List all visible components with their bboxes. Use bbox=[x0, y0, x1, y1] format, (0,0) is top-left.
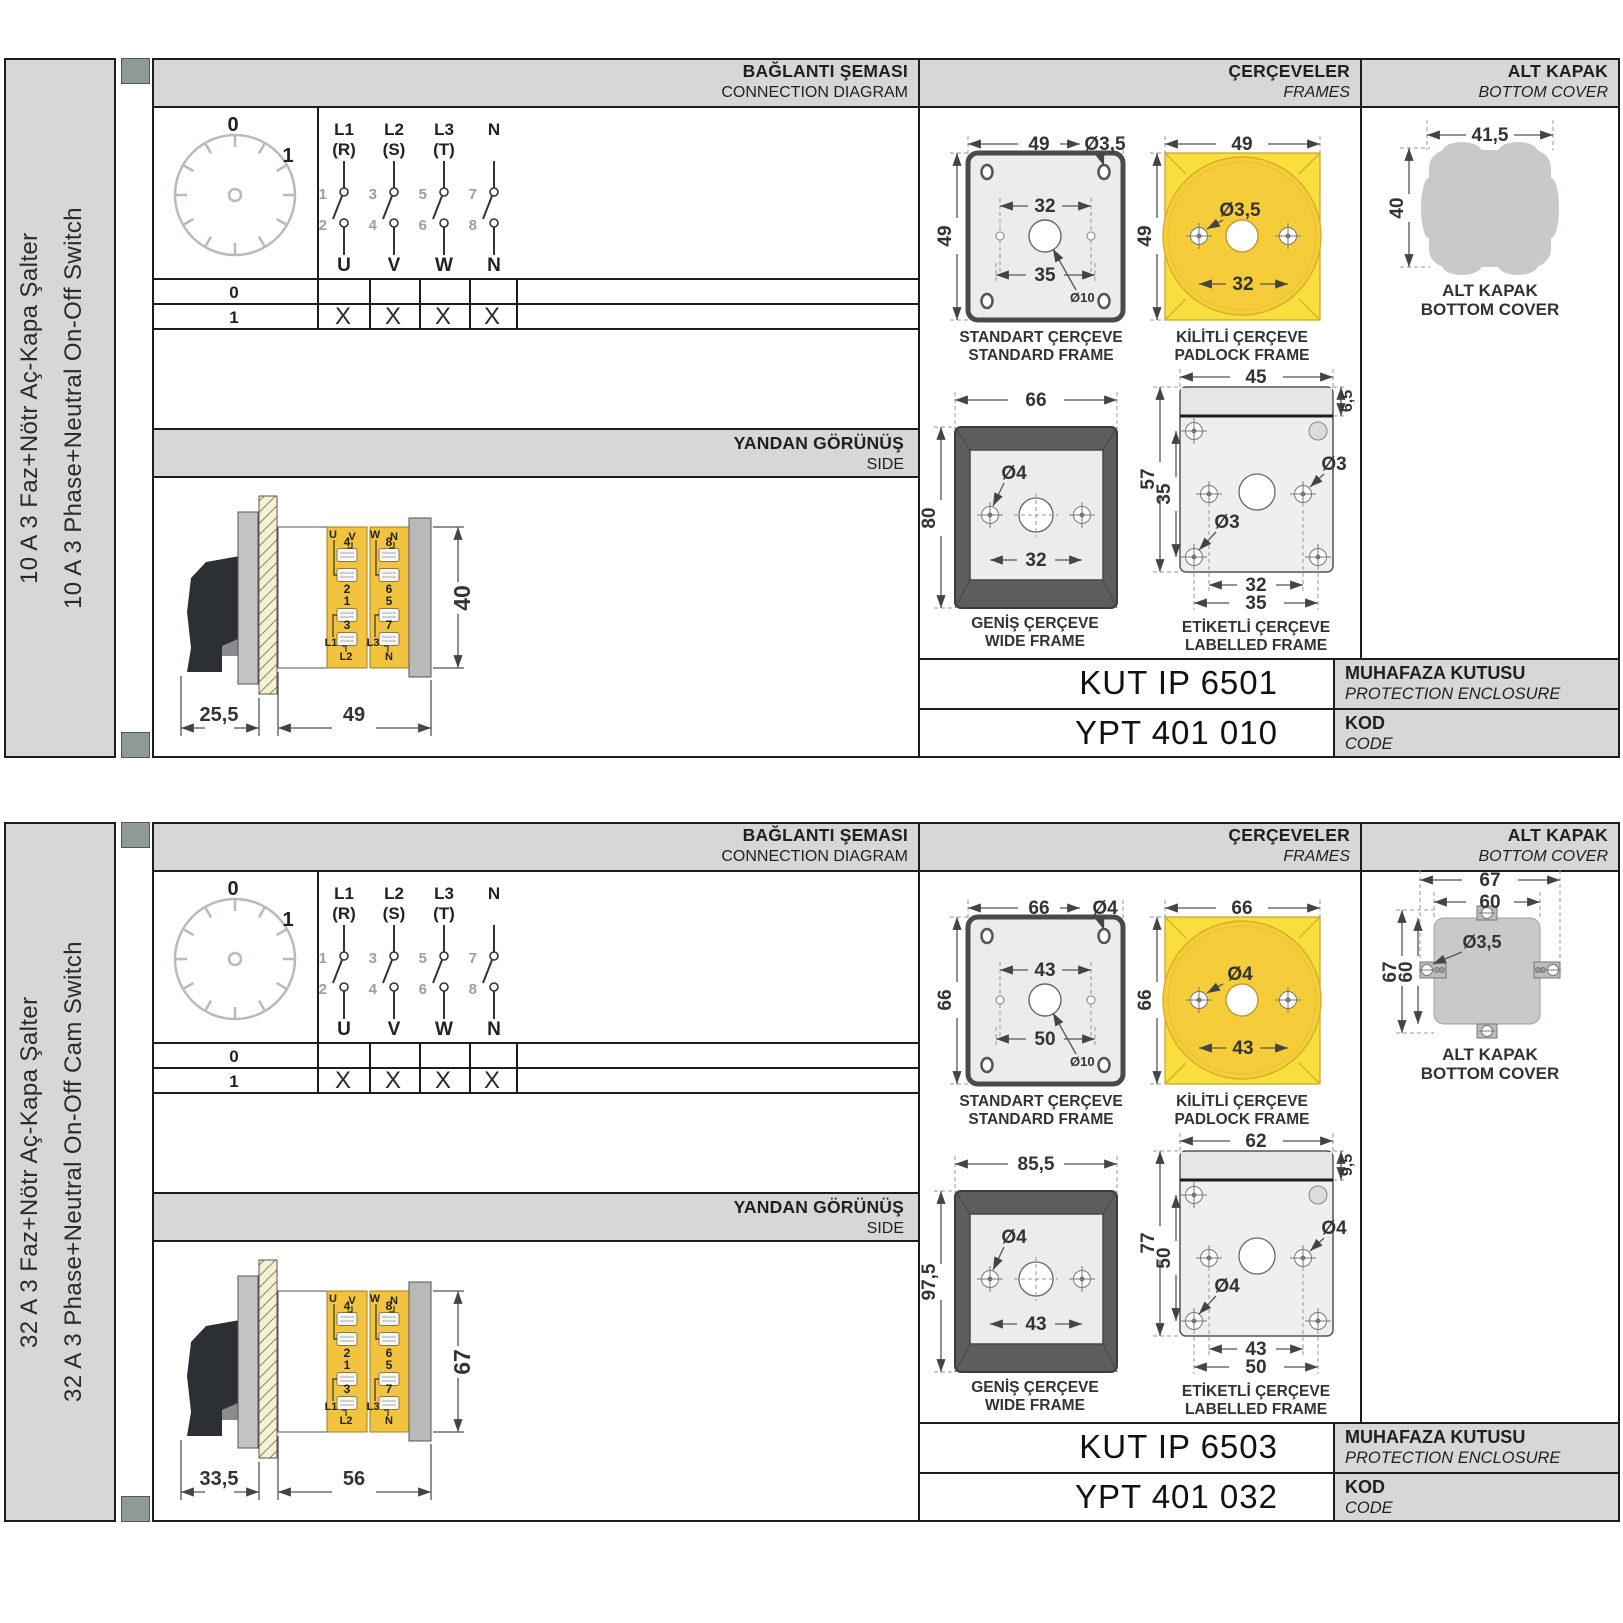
pole-label: (R) bbox=[332, 904, 356, 923]
frame-label-en: WIDE FRAME bbox=[985, 633, 1085, 650]
dim-label: 50 bbox=[1154, 1247, 1175, 1268]
dim-label: 6,5 bbox=[1339, 390, 1356, 412]
dim-label: 49 bbox=[1135, 225, 1156, 246]
terminal-number: 3 bbox=[344, 1382, 351, 1396]
contact-number: 1 bbox=[319, 950, 327, 967]
dim-label: Ø4 bbox=[1214, 1276, 1240, 1297]
dim-label: 49 bbox=[1028, 134, 1049, 155]
terminal-label: W bbox=[370, 1293, 381, 1305]
dim-label: Ø10 bbox=[1070, 1054, 1095, 1069]
dim-label: Ø10 bbox=[1070, 290, 1095, 305]
contact-number: 4 bbox=[369, 981, 378, 998]
dim-label: Ø4 bbox=[1001, 463, 1027, 484]
switch-table-text: 0 1 X X X X bbox=[229, 283, 500, 330]
padlock-frame-drawing: Ø3,5 32 49 49 KİLİTLİ ÇERÇEVE PADLOCK FR… bbox=[1135, 134, 1321, 364]
terminal-label: N bbox=[385, 1415, 393, 1427]
pole-drawing-3: L3 (T) 5 6 W bbox=[419, 884, 455, 1040]
contact-number: 6 bbox=[419, 217, 427, 234]
terminal-number: 4 bbox=[344, 1299, 351, 1313]
frame-label-tr: GENİŞ ÇERÇEVE bbox=[971, 1379, 1098, 1396]
end-plate bbox=[409, 1282, 431, 1441]
dim-label: 97,5 bbox=[919, 1263, 940, 1300]
terminal-number: 8 bbox=[386, 1299, 393, 1313]
frame-label-tr: GENİŞ ÇERÇEVE bbox=[971, 615, 1098, 632]
pole-drawing-4: N 7 8 N bbox=[469, 884, 501, 1040]
terminal-label: L3 bbox=[367, 637, 380, 649]
wide-frame-drawing: Ø4 32 66 80 GENİŞ ÇERÇEVE WIDE FRAME bbox=[919, 390, 1117, 650]
dim-label-depth: 25,5 bbox=[200, 704, 239, 726]
dial-position-0: 0 bbox=[227, 878, 238, 900]
dim-label: Ø4 bbox=[1092, 898, 1118, 919]
table-row-label: 1 bbox=[229, 1072, 238, 1091]
contact-number: 3 bbox=[369, 950, 377, 967]
table-mark: X bbox=[385, 1067, 401, 1094]
pole-drawing-4: N 7 8 N bbox=[469, 120, 501, 276]
terminal-number: 1 bbox=[344, 1358, 351, 1372]
product-section: 32 A 3 Faz+Nötr Aç-Kapa Şalter 32 A 3 Ph… bbox=[0, 822, 1623, 1522]
cover-label-tr: ALT KAPAK bbox=[1442, 1045, 1538, 1064]
table-row-label: 0 bbox=[229, 1047, 238, 1066]
terminal-label: L2 bbox=[340, 651, 353, 663]
pole-label: L1 bbox=[334, 120, 354, 139]
contact-number: 7 bbox=[469, 186, 477, 203]
frame-label-en: LABELLED FRAME bbox=[1185, 637, 1327, 654]
pole-drawing-1: L1 (R) 1 2 U bbox=[319, 120, 356, 276]
standard-frame-drawing: Ø10 66 Ø4 66 43 50 bbox=[935, 898, 1123, 1128]
pole-output: U bbox=[337, 255, 351, 276]
terminal-label: N bbox=[385, 651, 393, 663]
dim-label: Ø4 bbox=[1321, 1218, 1347, 1239]
dim-label: Ø3,5 bbox=[1462, 932, 1501, 952]
dim-label-height: 40 bbox=[449, 585, 475, 611]
frame-label-en: STANDARD FRAME bbox=[968, 347, 1113, 364]
terminal-number: 8 bbox=[386, 535, 393, 549]
frame-label-tr: STANDART ÇERÇEVE bbox=[959, 329, 1122, 346]
contact-number: 1 bbox=[319, 186, 327, 203]
pole-label: L2 bbox=[384, 884, 404, 903]
terminal-number: 5 bbox=[386, 594, 393, 608]
contact-number: 6 bbox=[419, 981, 427, 998]
contact-number: 5 bbox=[419, 186, 427, 203]
dim-label: 60 bbox=[1479, 892, 1500, 913]
frame-label-tr: KİLİTLİ ÇERÇEVE bbox=[1176, 329, 1308, 346]
contact-number: 3 bbox=[369, 186, 377, 203]
dim-label: 66 bbox=[1028, 898, 1049, 919]
dim-label: Ø3,5 bbox=[1219, 200, 1261, 221]
table-mark: X bbox=[435, 1067, 451, 1094]
labelled-frame-drawing: 45 6,5 57 35 Ø3 Ø3 bbox=[1138, 367, 1356, 654]
panel-hatch bbox=[259, 496, 277, 694]
pole-output: W bbox=[435, 255, 453, 276]
dim-label: 32 bbox=[1232, 274, 1253, 295]
panel-hatch bbox=[259, 1260, 277, 1458]
dim-label: Ø3,5 bbox=[1084, 134, 1126, 155]
pole-label: (S) bbox=[383, 904, 406, 923]
drawings-layer: 0 1 L1 (R) 1 2 U L2 (S) bbox=[0, 58, 1623, 758]
pole-output: U bbox=[337, 1019, 351, 1040]
pole-drawing-2: L2 (S) 3 4 V bbox=[369, 120, 406, 276]
pole-output: W bbox=[435, 1019, 453, 1040]
terminal-number: 7 bbox=[386, 618, 393, 632]
terminal-number: 1 bbox=[344, 594, 351, 608]
padlock-frame-drawing: Ø4 43 66 66 KİLİTLİ ÇERÇEVE PADLOCK FRAM… bbox=[1135, 898, 1321, 1128]
pole-label: N bbox=[488, 120, 500, 139]
terminal-label: L3 bbox=[367, 1401, 380, 1413]
terminal-label: L2 bbox=[340, 1415, 353, 1427]
table-mark: X bbox=[484, 1067, 500, 1094]
table-mark: X bbox=[435, 303, 451, 330]
terminal-label: U bbox=[329, 529, 337, 541]
terminal-label: L1 bbox=[325, 1401, 338, 1413]
front-plate bbox=[238, 1276, 258, 1448]
pole-label: (T) bbox=[433, 904, 455, 923]
dim-label: 35 bbox=[1154, 483, 1175, 505]
dial-drawing: 0 1 bbox=[175, 878, 295, 1019]
pole-label: (R) bbox=[332, 140, 356, 159]
dim-label: 32 bbox=[1034, 196, 1055, 217]
dim-label: 9,5 bbox=[1339, 1154, 1356, 1176]
wide-frame-drawing: Ø4 43 85,5 97,5 GENİŞ ÇERÇEVE WIDE FRAME bbox=[919, 1154, 1117, 1414]
dim-label: Ø4 bbox=[1001, 1227, 1027, 1248]
frame-label-tr: ETİKETLİ ÇERÇEVE bbox=[1182, 1383, 1330, 1400]
switch-front-body bbox=[278, 1291, 327, 1432]
dim-label-width: 56 bbox=[343, 1468, 365, 1490]
dim-label: 66 bbox=[1025, 390, 1046, 411]
contact-number: 7 bbox=[469, 950, 477, 967]
side-view-drawing: U V W N L1 L2 L3 N 4 2 1 3 8 6 5 7 2 bbox=[181, 496, 475, 736]
contact-number: 2 bbox=[319, 981, 327, 998]
switch-front-body bbox=[278, 527, 327, 668]
terminal-label: W bbox=[370, 529, 381, 541]
dial-position-1: 1 bbox=[282, 145, 293, 167]
pole-label: L3 bbox=[434, 884, 454, 903]
terminal-number: 4 bbox=[344, 535, 351, 549]
dim-label: 41,5 bbox=[1472, 125, 1509, 146]
dim-label: 49 bbox=[1231, 134, 1252, 155]
terminal-label: U bbox=[329, 1293, 337, 1305]
dim-label: 32 bbox=[1025, 550, 1046, 571]
dim-label: 66 bbox=[1135, 989, 1156, 1010]
terminal-label: L1 bbox=[325, 637, 338, 649]
dim-label: 50 bbox=[1034, 1029, 1055, 1050]
contact-number: 4 bbox=[369, 217, 378, 234]
dim-label: 60 bbox=[1396, 961, 1417, 982]
dial-drawing: 0 1 bbox=[175, 114, 295, 255]
pole-label: N bbox=[488, 884, 500, 903]
dim-label: 62 bbox=[1245, 1131, 1266, 1152]
dim-label: 50 bbox=[1245, 1357, 1266, 1378]
contact-number: 8 bbox=[469, 217, 477, 234]
dial-position-1: 1 bbox=[282, 909, 293, 931]
pole-drawing-1: L1 (R) 1 2 U bbox=[319, 884, 356, 1040]
dim-label: 43 bbox=[1025, 1314, 1046, 1335]
dim-label: 66 bbox=[1231, 898, 1252, 919]
drawings-layer: 0 1 L1 (R) 1 2 U L2 (S) bbox=[0, 822, 1623, 1522]
labelled-frame-drawing: 62 9,5 77 50 Ø4 Ø4 bbox=[1138, 1131, 1356, 1418]
dim-label: 35 bbox=[1034, 265, 1056, 286]
standard-frame-drawing: Ø10 49 Ø3,5 49 32 35 bbox=[935, 134, 1126, 364]
pole-label: L1 bbox=[334, 884, 354, 903]
dim-label: 49 bbox=[935, 225, 956, 246]
dim-label: 85,5 bbox=[1018, 1154, 1055, 1175]
cover-label-tr: ALT KAPAK bbox=[1442, 281, 1538, 300]
table-row-label: 0 bbox=[229, 283, 238, 302]
terminal-number: 7 bbox=[386, 1382, 393, 1396]
product-section: 10 A 3 Faz+Nötr Aç-Kapa Şalter 10 A 3 Ph… bbox=[0, 58, 1623, 758]
dim-label: 35 bbox=[1245, 593, 1267, 614]
dim-label: 45 bbox=[1245, 367, 1267, 388]
frame-label-en: PADLOCK FRAME bbox=[1175, 1111, 1310, 1128]
bottom-cover-drawing: 67 60 67 60 Ø3,5 bbox=[1380, 870, 1561, 1038]
dim-label: 67 bbox=[1479, 870, 1500, 891]
contact-number: 5 bbox=[419, 950, 427, 967]
dim-label: Ø4 bbox=[1227, 964, 1253, 985]
pole-output: V bbox=[388, 1019, 401, 1040]
dim-label: Ø3 bbox=[1321, 454, 1346, 475]
catalog-page: 10 A 3 Faz+Nötr Aç-Kapa Şalter 10 A 3 Ph… bbox=[0, 0, 1623, 1623]
cover-label-en: BOTTOM COVER bbox=[1421, 300, 1560, 319]
frame-label-tr: KİLİTLİ ÇERÇEVE bbox=[1176, 1093, 1308, 1110]
pole-label: (T) bbox=[433, 140, 455, 159]
switch-table-text: 0 1 X X X X bbox=[229, 1047, 500, 1094]
front-plate bbox=[238, 512, 258, 684]
pole-output: N bbox=[487, 255, 501, 276]
contact-number: 2 bbox=[319, 217, 327, 234]
pole-label: L3 bbox=[434, 120, 454, 139]
frame-label-en: STANDARD FRAME bbox=[968, 1111, 1113, 1128]
frame-label-en: LABELLED FRAME bbox=[1185, 1401, 1327, 1418]
table-row-label: 1 bbox=[229, 308, 238, 327]
contact-number: 8 bbox=[469, 981, 477, 998]
dim-label-depth: 33,5 bbox=[200, 1468, 239, 1490]
table-mark: X bbox=[484, 303, 500, 330]
end-plate bbox=[409, 518, 431, 677]
terminal-number: 3 bbox=[344, 618, 351, 632]
dim-label-width: 49 bbox=[343, 704, 365, 726]
frame-label-en: WIDE FRAME bbox=[985, 1397, 1085, 1414]
dial-position-0: 0 bbox=[227, 114, 238, 136]
frame-label-tr: ETİKETLİ ÇERÇEVE bbox=[1182, 619, 1330, 636]
dim-label: 66 bbox=[935, 989, 956, 1010]
frame-label-en: PADLOCK FRAME bbox=[1175, 347, 1310, 364]
pole-label: L2 bbox=[384, 120, 404, 139]
pole-output: V bbox=[388, 255, 401, 276]
cover-label-en: BOTTOM COVER bbox=[1421, 1064, 1560, 1083]
pole-drawing-2: L2 (S) 3 4 V bbox=[369, 884, 406, 1040]
pole-drawing-3: L3 (T) 5 6 W bbox=[419, 120, 455, 276]
frame-label-tr: STANDART ÇERÇEVE bbox=[959, 1093, 1122, 1110]
dim-label: 40 bbox=[1387, 197, 1408, 218]
table-mark: X bbox=[335, 1067, 351, 1094]
dim-label: Ø3 bbox=[1214, 512, 1239, 533]
dim-label-height: 67 bbox=[449, 1349, 475, 1375]
dim-label: 43 bbox=[1232, 1038, 1253, 1059]
dim-label: 80 bbox=[919, 507, 940, 528]
pole-label: (S) bbox=[383, 140, 406, 159]
pole-output: N bbox=[487, 1019, 501, 1040]
table-mark: X bbox=[335, 303, 351, 330]
bottom-cover-drawing: 41,5 40 bbox=[1387, 120, 1559, 275]
side-view-drawing: U V W N L1 L2 L3 N 4 2 1 3 8 6 5 7 3 bbox=[181, 1260, 475, 1500]
dim-label: 43 bbox=[1034, 960, 1055, 981]
table-mark: X bbox=[385, 303, 401, 330]
terminal-number: 5 bbox=[386, 1358, 393, 1372]
